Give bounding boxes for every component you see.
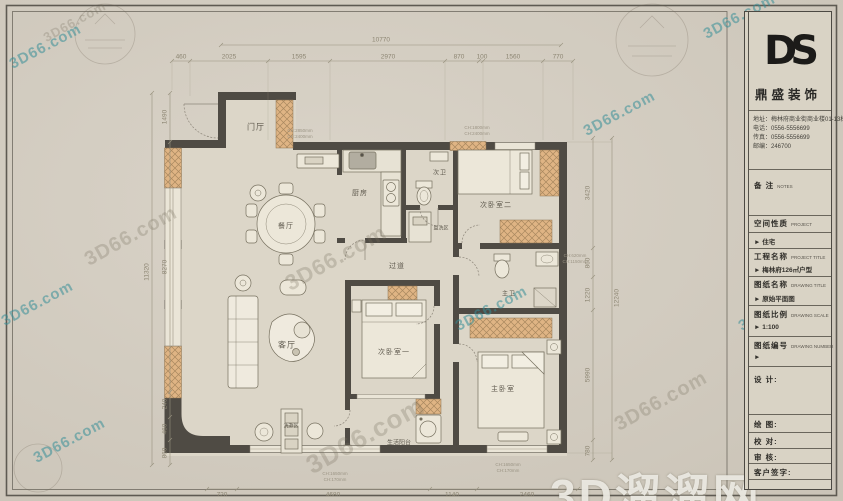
title-block: DS 鼎盛装饰 地址：梅林府商业街商业楼01-13栋 电话：0556-55566… <box>744 11 832 490</box>
dim-top-total: 10770 <box>372 37 390 44</box>
dim-left-2: 240 <box>162 399 169 410</box>
designer-row: 设 计: <box>754 374 829 385</box>
room-label-mbed: 主卧室 <box>491 384 515 394</box>
space-type-value: ► 住宅 <box>754 236 829 246</box>
floor-plan-drawing <box>0 0 843 501</box>
company-name: 鼎盛装饰 <box>745 84 831 103</box>
dim-top-7: 770 <box>553 54 564 61</box>
company-postcode: 邮编：246700 <box>753 143 829 153</box>
dim-right-4: 780 <box>585 446 592 457</box>
room-label-wash: 盥洗区 <box>433 225 448 232</box>
dim-top-4: 870 <box>454 54 465 61</box>
dim-left-1: 8270 <box>162 260 169 274</box>
drawing-number-value: ► <box>754 354 829 361</box>
dim-right-0: 3420 <box>585 186 592 200</box>
annotation-window-2: CH:1800mm CH:2400mm <box>464 125 489 137</box>
dim-left-4: 860 <box>162 448 169 459</box>
drawing-number-row: 图纸编号 DRAWING NUMBER <box>754 340 829 351</box>
dim-right-total: 12240 <box>614 289 621 307</box>
room-label-bath2: 次卫 <box>433 168 447 177</box>
dim-bottom-0: 720 <box>217 492 228 499</box>
drawing-scale-row: 图纸比例 DRAWING SCALE <box>754 309 829 320</box>
reviewer-row: 审 核: <box>754 452 829 463</box>
room-label-entry: 门厅 <box>247 122 265 133</box>
dim-bottom-2: 1140 <box>445 492 459 499</box>
dim-right-3: 5990 <box>585 368 592 382</box>
dim-left-3: 460 <box>162 424 169 435</box>
dim-right-2: 1220 <box>585 288 592 302</box>
annotation-window-3: CH:1650mm CH:170mm <box>322 471 347 483</box>
project-title-value: ► 梅林府126㎡户型 <box>754 264 829 274</box>
project-title-row: 工程名称 PROJECT TITLE <box>754 251 829 262</box>
dim-top-5: 100 <box>477 54 488 61</box>
drawing-sheet: 门厅 餐厅 厨房 次卫 次卧室二 盥洗区 过道 客厅 次卧室一 主卫 主卧室 生… <box>0 0 843 501</box>
dim-top-0: 460 <box>176 54 187 61</box>
room-label-kitchen: 厨房 <box>352 188 368 198</box>
room-label-mbath: 主卫 <box>502 289 516 298</box>
room-label-bed2: 次卧室二 <box>480 200 512 210</box>
annotation-window-4: CH:1650mm CH:170mm <box>495 462 520 474</box>
dim-top-6: 1560 <box>506 54 520 61</box>
room-label-living: 客厅 <box>278 340 296 351</box>
annotation-window-5: CH:620mm CH:1150mm <box>563 253 588 265</box>
room-label-dining: 餐厅 <box>278 221 294 231</box>
checker-row: 校 对: <box>754 436 829 447</box>
annotation-window-1: CH:2850mm CH:2400mm <box>287 128 312 140</box>
space-type-row: 空间性质 PROJECT <box>754 218 829 229</box>
dim-bottom-3: 2460 <box>520 492 534 499</box>
dim-left-0: 1490 <box>162 110 169 124</box>
room-label-laundry: 洗漱区 <box>283 423 298 430</box>
drawing-title-value: ► 原始平面图 <box>754 293 829 303</box>
company-logo: DS <box>745 28 831 74</box>
room-label-balcony: 生活阳台 <box>387 438 411 447</box>
drawing-scale-value: ► 1:100 <box>754 324 829 331</box>
room-label-bed1: 次卧室一 <box>378 347 410 357</box>
dim-top-1: 2025 <box>222 54 236 61</box>
client-signature-row: 客户签字: <box>754 467 829 478</box>
room-label-hall: 过道 <box>389 261 405 271</box>
dim-top-3: 2970 <box>381 54 395 61</box>
draftsman-row: 绘 图: <box>754 419 829 430</box>
drawing-title-row: 图纸名称 DRAWING TITLE <box>754 279 829 290</box>
dim-top-2: 1595 <box>292 54 306 61</box>
dim-bottom-1: 4680 <box>326 492 340 499</box>
dim-left-total: 11320 <box>144 263 151 281</box>
notes-row: 备 注 NOTES <box>754 180 829 191</box>
